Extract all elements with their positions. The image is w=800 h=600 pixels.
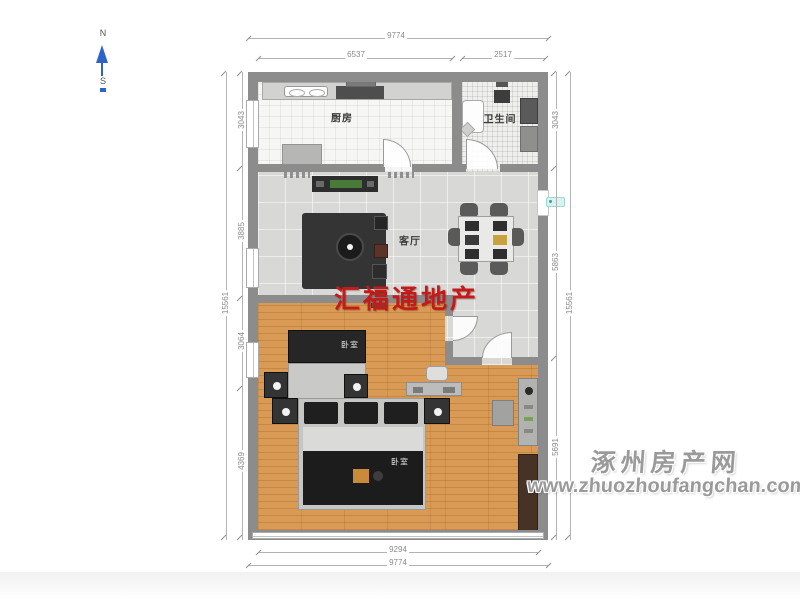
sink-icon <box>284 86 328 97</box>
site-url-watermark: www.zhuozhoufangchan.com <box>526 476 800 497</box>
placemat <box>465 249 479 259</box>
tv-shelf-left <box>284 172 310 178</box>
stove-icon <box>336 86 384 99</box>
coffee-table-icon <box>336 233 364 261</box>
north-arrow-icon <box>96 45 108 63</box>
dining-chair-icon <box>460 262 478 275</box>
placemat <box>493 235 507 245</box>
wall-hall-vertical-b <box>445 341 453 365</box>
vanity-item <box>524 405 533 409</box>
bed-sheet <box>303 427 423 451</box>
floorplan-page: N S <box>0 0 800 600</box>
kitchen-label: 厨房 <box>331 110 353 125</box>
tv-console-icon <box>312 176 378 192</box>
dining-chair-icon <box>512 228 524 246</box>
tv-speaker <box>367 181 374 187</box>
vanity-desk-icon <box>518 378 538 446</box>
compass-north-label: N <box>100 28 107 38</box>
nightstand-icon <box>272 398 298 424</box>
tv-shelf-right <box>388 172 414 178</box>
compass-south-mark <box>100 88 106 92</box>
pillow-icon <box>304 402 338 424</box>
nightstand-icon <box>264 372 288 398</box>
bathroom-label: 卫生间 <box>484 111 517 126</box>
dining-chair-icon <box>490 262 508 275</box>
placemat <box>493 221 507 231</box>
bath-cabinet-icon <box>520 126 538 152</box>
lamp-icon <box>434 408 442 416</box>
dim-bottom-overall: 9774 <box>387 559 409 567</box>
window-living <box>246 248 259 288</box>
vanity-chair-icon <box>492 400 514 426</box>
site-name-watermark: 涿州房产网 <box>528 450 800 476</box>
wall-hall-bottom-a <box>453 357 482 365</box>
wall-kitchen-bottom-2 <box>412 164 466 172</box>
sink-bowl <box>309 89 325 97</box>
desk-icon <box>406 382 462 396</box>
desk-item <box>413 387 423 393</box>
shower-base-icon <box>494 90 510 103</box>
lamp-icon <box>282 408 290 416</box>
side-table-icon <box>374 216 388 230</box>
pillow-icon <box>384 402 418 424</box>
wall-top <box>248 72 548 82</box>
window-bottom <box>252 532 544 539</box>
blanket-fold <box>353 469 369 483</box>
side-table-icon <box>372 264 387 279</box>
lamp-icon <box>353 383 361 391</box>
compass-south-label: S <box>100 76 106 86</box>
dim-left-overall: 15561 <box>222 290 230 316</box>
wall-kitchen-bottom <box>258 164 385 172</box>
nightstand-icon <box>424 398 450 424</box>
tv-screen-icon <box>330 180 362 188</box>
placemat <box>493 249 507 259</box>
desk-chair-icon <box>426 366 448 381</box>
bottom-fade <box>0 572 800 600</box>
lamp-icon <box>273 382 281 390</box>
nightstand-icon <box>344 374 368 398</box>
dim-left-seg-3: 3064 <box>238 330 246 352</box>
dim-left-seg-1: 3043 <box>238 109 246 131</box>
dim-top-segment-right: 2517 <box>492 51 514 59</box>
placemat <box>465 221 479 231</box>
dim-left-seg-2: 3885 <box>238 220 246 242</box>
site-watermark: 涿州房产网 www.zhuozhoufangchan.com <box>526 450 800 497</box>
vanity-mirror <box>525 387 533 395</box>
pillow-icon <box>344 402 378 424</box>
bedroom-mid-label: 卧室 <box>341 340 359 351</box>
dim-right-seg-1: 3043 <box>552 109 560 131</box>
sink-bowl <box>289 89 305 97</box>
window-kitchen <box>246 100 259 148</box>
wall-kitchen-bath-divider <box>452 82 462 172</box>
dining-table-icon <box>458 216 514 262</box>
table-decor <box>347 244 353 250</box>
dim-top-overall: 9774 <box>385 32 407 40</box>
wall-hall-bottom-b <box>512 357 538 365</box>
dim-right-seg-2: 5863 <box>552 251 560 273</box>
vanity-item <box>524 429 533 433</box>
wall-bath-bottom <box>500 164 538 172</box>
placemat <box>465 235 479 245</box>
dim-bottom-inner: 9294 <box>387 546 409 554</box>
desk-item <box>443 387 455 393</box>
agency-watermark: 汇福通地产 <box>334 286 479 312</box>
toilet-icon <box>520 98 538 124</box>
compass-stem <box>101 63 103 76</box>
dining-chair-icon <box>448 228 460 246</box>
tv-speaker <box>316 181 324 187</box>
dining-chair-icon <box>490 203 508 216</box>
dining-chair-icon <box>460 203 478 216</box>
armchair-icon <box>374 244 388 258</box>
bed-icon <box>298 398 426 510</box>
blanket-decor <box>373 471 383 481</box>
bedroom-bottom-label: 卧室 <box>391 457 409 468</box>
living-room-label: 客厅 <box>399 233 421 248</box>
dim-top-segment-left: 6537 <box>345 51 367 59</box>
window-bedroom-mid <box>246 342 259 378</box>
vanity-item <box>524 417 533 421</box>
dim-right-overall: 15561 <box>566 290 574 316</box>
dim-left-seg-4: 4369 <box>238 450 246 472</box>
